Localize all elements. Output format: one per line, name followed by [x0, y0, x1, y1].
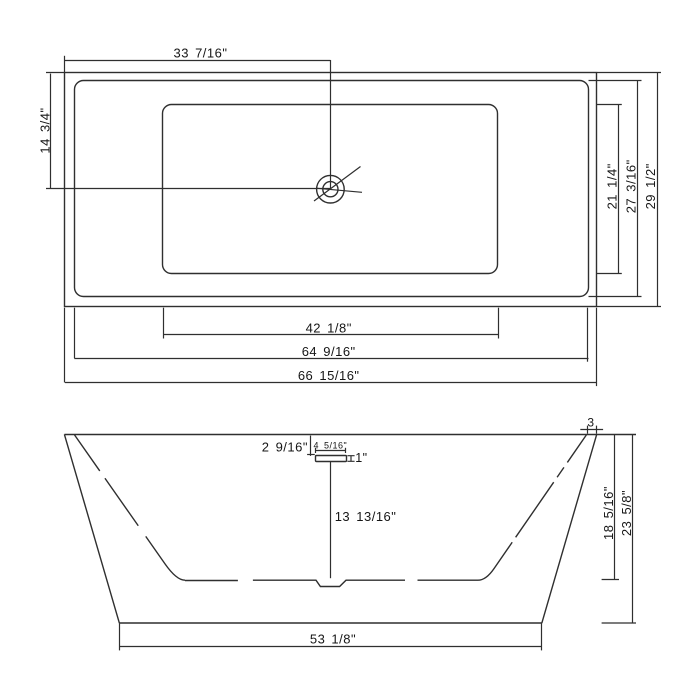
svg-text:4 5/16": 4 5/16" [313, 441, 347, 451]
svg-text:23 5/8": 23 5/8" [619, 490, 634, 536]
svg-text:64 9/16": 64 9/16" [302, 344, 356, 359]
svg-text:18 5/16": 18 5/16" [601, 486, 616, 540]
svg-text:33 7/16": 33 7/16" [174, 45, 228, 60]
svg-text:14 3/4": 14 3/4" [38, 107, 53, 153]
svg-text:42 1/8": 42 1/8" [306, 321, 352, 336]
svg-text:21 1/4": 21 1/4" [604, 163, 619, 209]
svg-text:2 9/16": 2 9/16" [262, 439, 308, 454]
svg-text:27 3/16": 27 3/16" [623, 159, 638, 213]
svg-text:13 13/16": 13 13/16" [335, 509, 397, 524]
svg-text:1": 1" [355, 451, 367, 465]
svg-text:66 15/16": 66 15/16" [298, 368, 360, 383]
svg-text:53 1/8": 53 1/8" [310, 632, 356, 647]
svg-text:29 1/2": 29 1/2" [643, 163, 658, 209]
svg-text:3: 3 [587, 415, 594, 429]
